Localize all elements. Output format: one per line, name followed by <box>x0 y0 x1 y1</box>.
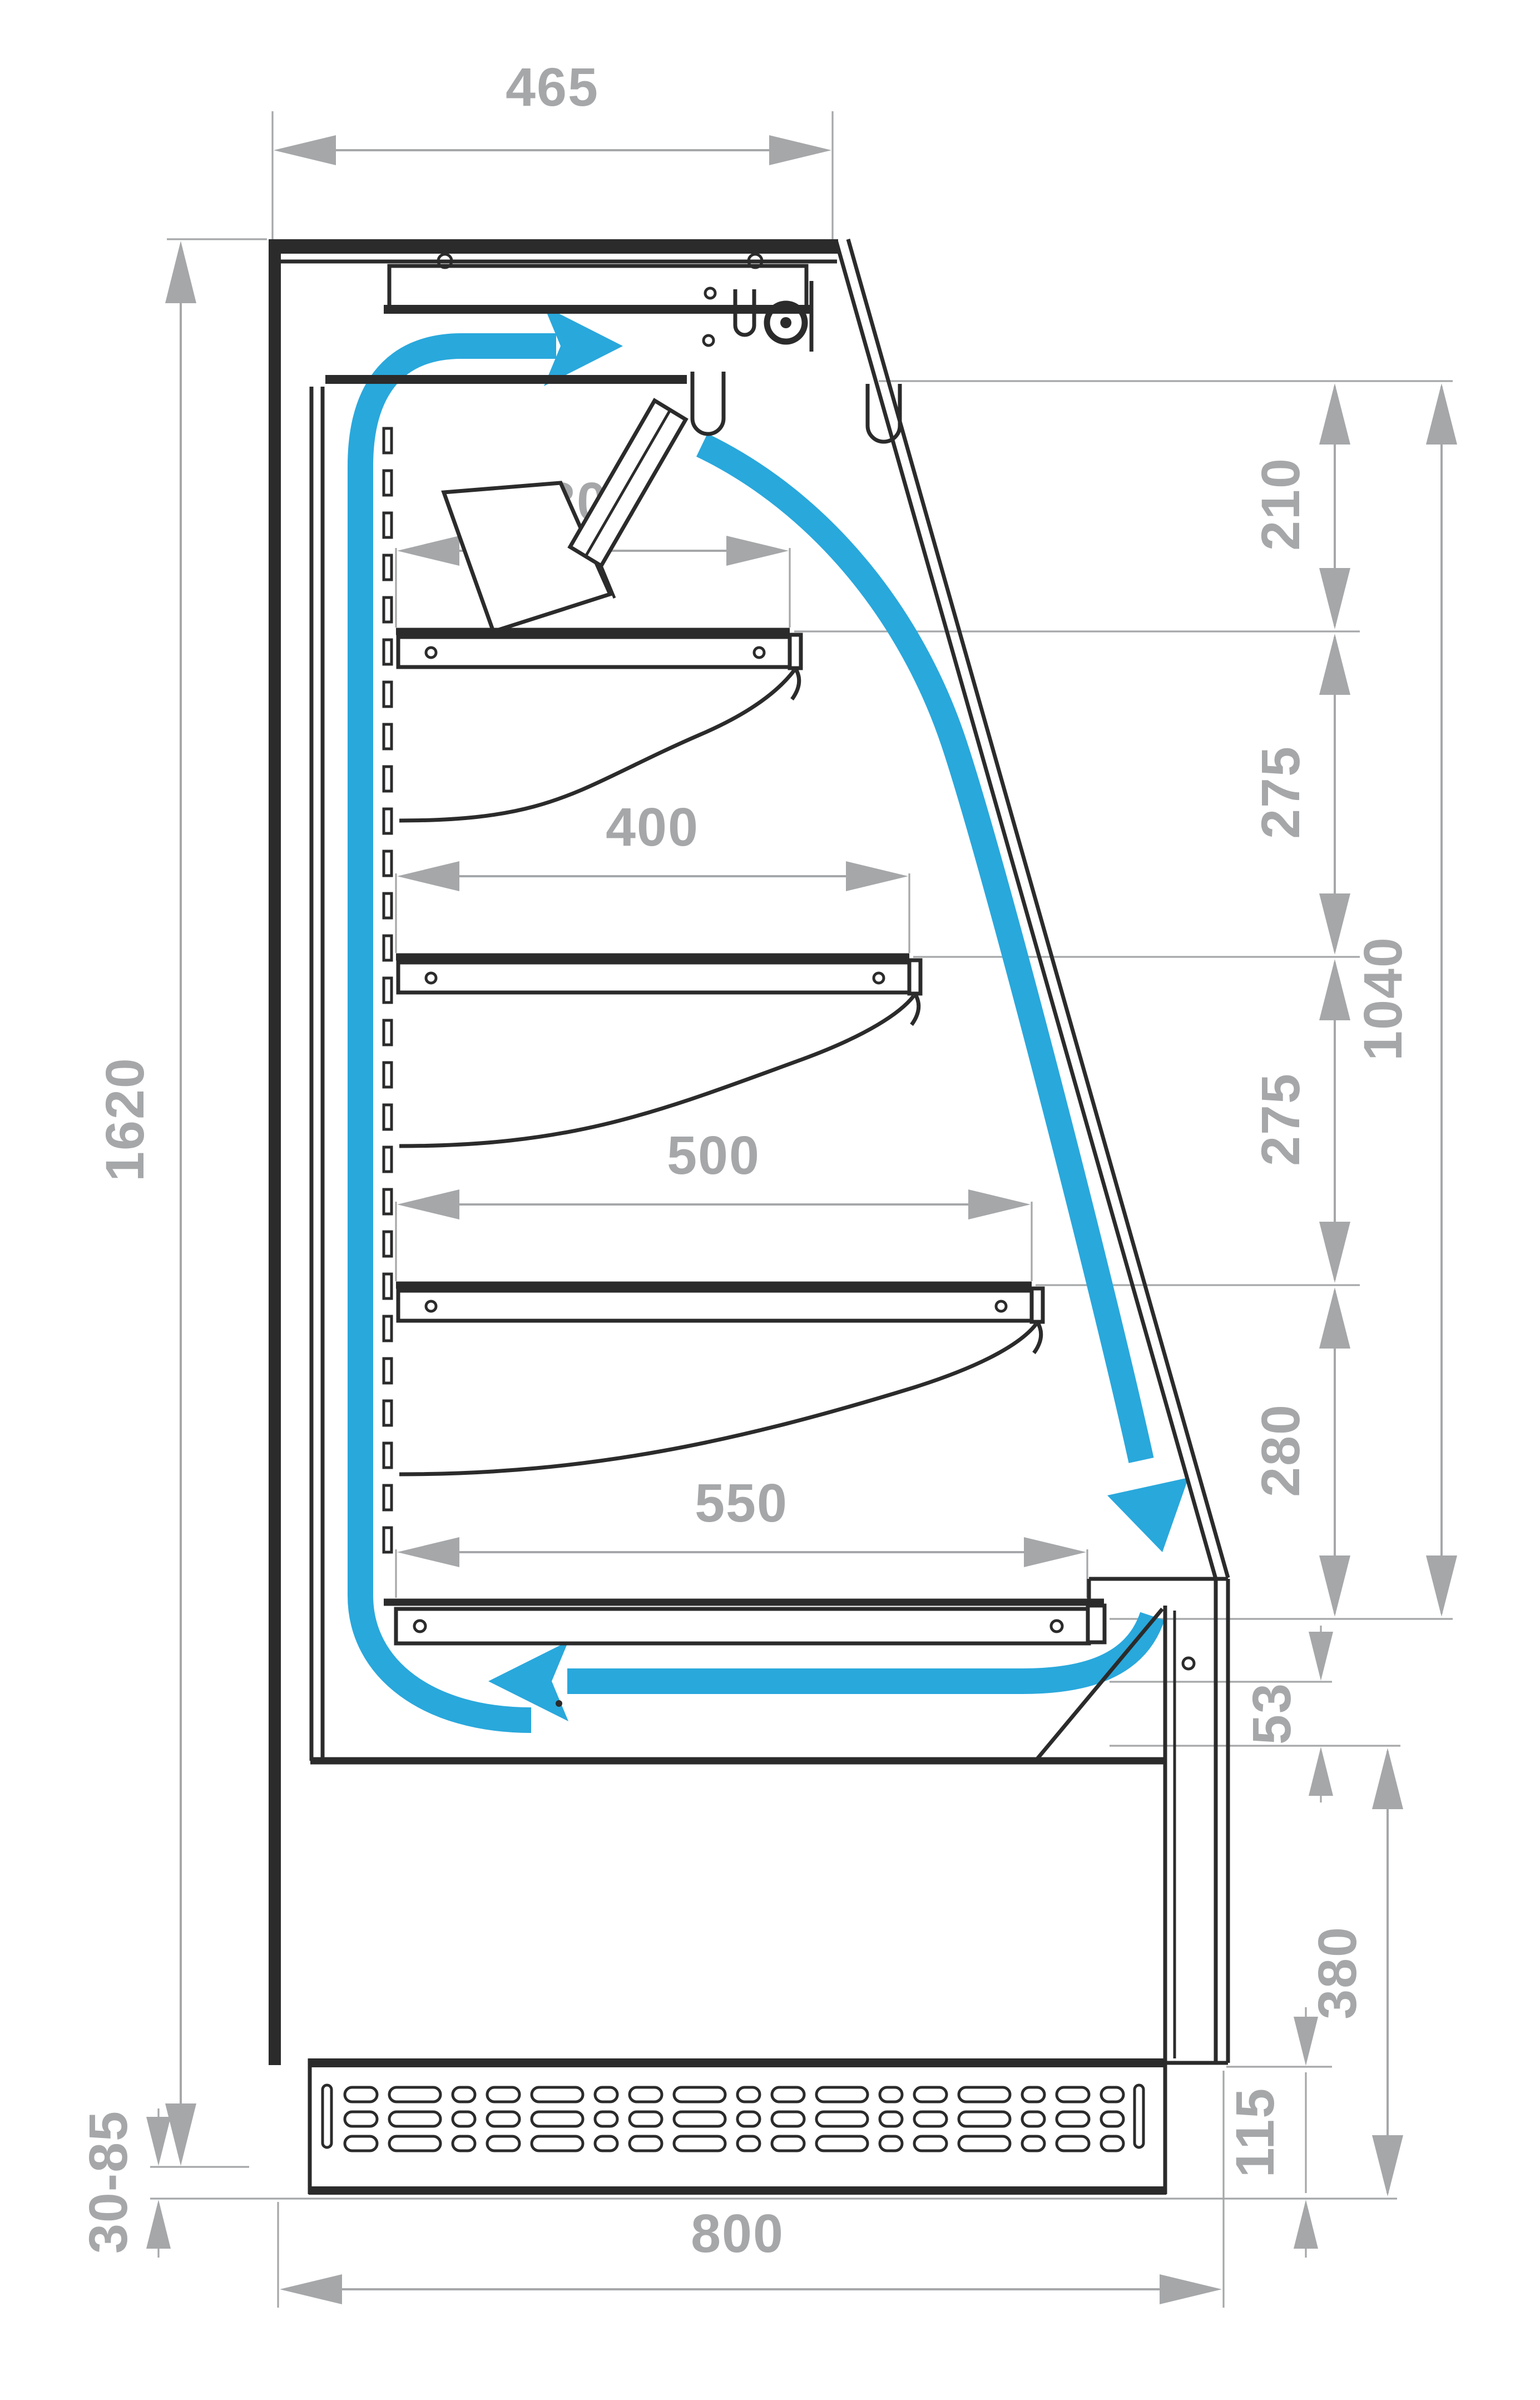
shelf-1-bracket-wire <box>399 670 794 821</box>
technical-drawing-page: { "colors": { "linework": "#2b2b2b", "di… <box>0 0 1540 2400</box>
back-wall <box>269 239 281 2065</box>
dim-label-275-upper: 275 <box>1250 745 1311 839</box>
vent-end-slot-left <box>323 2085 331 2147</box>
shelf-standard-slots <box>384 428 392 1552</box>
dim-shelf-400: 400 <box>396 797 909 953</box>
dim-label-465: 465 <box>506 57 599 117</box>
dim-deck-550: 550 <box>396 1473 1087 1598</box>
shelf-1 <box>396 631 801 821</box>
vent-end-slot-right <box>1135 2085 1143 2147</box>
dim-label-380: 380 <box>1307 1926 1368 2019</box>
dim-label-1620: 1620 <box>95 1057 155 1182</box>
dim-label-550: 550 <box>695 1473 788 1533</box>
canopy-lower-rail <box>325 375 687 384</box>
dim-total-height: 1620 <box>95 239 267 2166</box>
dim-label-30-85: 30-85 <box>78 2110 138 2254</box>
dimension-layer: 465 1620 30-85 <box>78 57 1457 2308</box>
dim-label-275-lower: 275 <box>1250 1073 1311 1166</box>
vent-row-2 <box>345 2112 1123 2126</box>
dim-label-400: 400 <box>606 797 699 857</box>
dim-sill: 53 <box>1110 1626 1400 1803</box>
dim-vertical-chain: 210 275 275 280 <box>1250 383 1350 1617</box>
front-bolt <box>1183 1658 1194 1669</box>
screw-hole-lower <box>704 335 714 345</box>
dim-label-500: 500 <box>667 1125 760 1186</box>
glass-front-inner <box>836 240 1216 1579</box>
shelf-2 <box>396 957 920 1146</box>
drain-dot <box>556 1700 562 1707</box>
display-case-cross-section: 465 1620 30-85 <box>0 0 1540 2400</box>
dim-front-panel: 380 <box>1307 1748 1403 2196</box>
light-box-bottom-bar <box>384 305 812 314</box>
dim-label-53: 53 <box>1241 1682 1302 1745</box>
dim-opening-height: 1040 <box>1353 383 1457 1617</box>
dim-feet-range: 30-85 <box>78 2108 249 2258</box>
glass-front-outer <box>848 239 1228 1578</box>
vent-slots <box>345 2087 1123 2151</box>
hook-bracket-2 <box>692 372 724 434</box>
dim-plinth: 115 <box>1225 2007 1332 2258</box>
dim-label-210: 210 <box>1250 457 1311 551</box>
dim-label-1040: 1040 <box>1353 936 1413 1061</box>
base-deck <box>384 1602 1105 1643</box>
canopy-top <box>269 239 838 254</box>
dim-label-115: 115 <box>1225 2087 1285 2178</box>
shelf-2-bracket-wire <box>399 996 914 1146</box>
shelf-3-bracket-wire <box>399 1324 1036 1474</box>
shelf-3 <box>396 1285 1043 1474</box>
dim-top-width: 465 <box>273 57 833 248</box>
vent-row-1 <box>345 2087 1123 2102</box>
plinth <box>309 2058 1166 2195</box>
dim-label-280: 280 <box>1250 1404 1311 1497</box>
dim-label-800: 800 <box>691 2203 784 2264</box>
dim-shelf-500: 500 <box>396 1125 1032 1281</box>
vent-row-3 <box>345 2136 1123 2151</box>
airflow-curtain-arrowhead <box>1107 1478 1189 1552</box>
fan-roller-axle <box>780 317 791 328</box>
light-box <box>389 266 806 307</box>
